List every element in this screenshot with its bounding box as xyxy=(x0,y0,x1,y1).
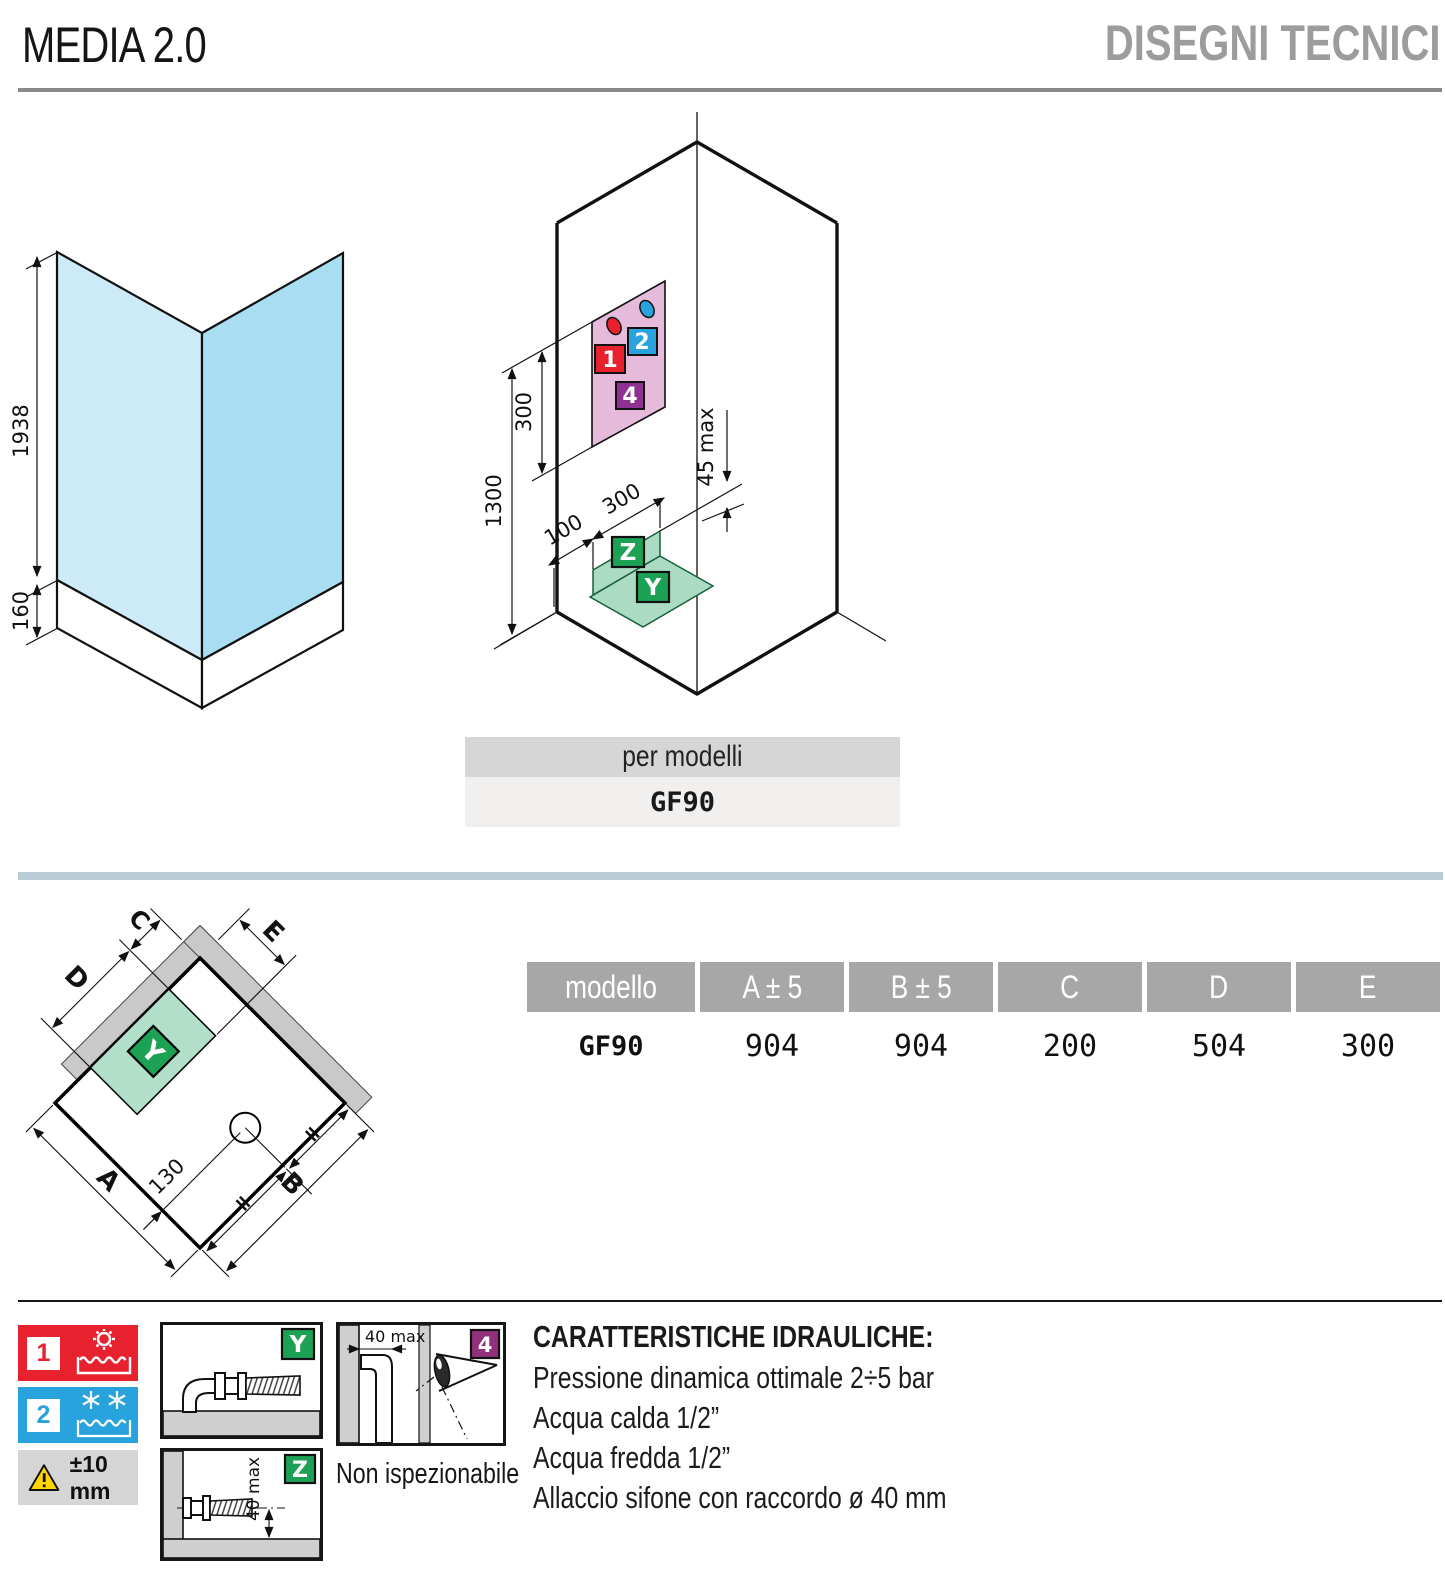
legend-cold-water: 2 xyxy=(18,1387,138,1443)
panel-m-drawing: 40 max 4 xyxy=(339,1325,503,1443)
header-rule xyxy=(18,88,1442,92)
page: MEDIA 2.0 DISEGNI TECNICI 1938 160 xyxy=(0,0,1445,1583)
dim-300-vert: 300 xyxy=(512,392,536,432)
panel-z-dim-40: 40 max xyxy=(244,1457,264,1521)
plan-dim-c: C xyxy=(123,904,155,936)
panel-z: 40 max Z xyxy=(160,1448,323,1561)
hydraulic-line-4: Allaccio sifone con raccordo ø 40 mm xyxy=(533,1478,1050,1518)
eye-icon xyxy=(432,1354,497,1391)
panel-m-marker-4: 4 xyxy=(471,1330,499,1358)
dim-1938: 1938 xyxy=(10,404,33,457)
plan-drawing: Y 130 A = = B C D E xyxy=(15,888,435,1308)
dim-100: 100 xyxy=(540,510,587,551)
panel-y-drawing: Y xyxy=(163,1325,320,1436)
per-modelli-value: GF90 xyxy=(465,777,900,827)
hydraulic-title: CARATTERISTICHE IDRAULICHE: xyxy=(533,1316,1050,1358)
legend-1-badge: 1 xyxy=(27,1337,60,1370)
col-e: E xyxy=(1296,962,1440,1012)
svg-text:Y: Y xyxy=(644,575,662,601)
per-modelli-label: per modelli xyxy=(465,737,900,777)
cell-a: 904 xyxy=(700,1028,844,1064)
panel-y-marker: Y xyxy=(282,1329,314,1359)
svg-text:4: 4 xyxy=(622,384,637,409)
panel-z-marker: Z xyxy=(285,1455,315,1483)
cell-e: 300 xyxy=(1296,1028,1440,1064)
spec-table-header: modello A ± 5 B ± 5 C D E xyxy=(527,962,1440,1012)
marker-y-square: Y xyxy=(637,572,669,602)
section-divider xyxy=(18,872,1443,880)
legend-hot-water: 1 xyxy=(18,1325,138,1381)
hydraulic-line-2: Acqua calda 1/2” xyxy=(533,1398,1050,1438)
cell-model: GF90 xyxy=(527,1028,695,1064)
cell-d: 504 xyxy=(1147,1028,1291,1064)
table-row: GF90 904 904 200 504 300 xyxy=(527,1028,1440,1064)
marker-z-square: Z xyxy=(612,537,644,567)
col-b: B ± 5 xyxy=(849,962,993,1012)
plan-tray xyxy=(55,958,345,1248)
per-modelli-box: per modelli GF90 xyxy=(465,737,900,827)
svg-text:Z: Z xyxy=(620,540,637,566)
svg-text:1: 1 xyxy=(602,348,617,373)
marker-4-square: 4 xyxy=(616,382,644,409)
snow-water-icon xyxy=(66,1390,136,1440)
snowflake-icon xyxy=(83,1391,125,1409)
panel-non-inspectable: 40 max 4 xyxy=(336,1322,506,1446)
col-c: C xyxy=(998,962,1142,1012)
page-subtitle: DISEGNI TECNICI xyxy=(1021,14,1440,72)
non-inspectable-label: Non ispezionabile xyxy=(336,1458,565,1491)
dim-1300: 1300 xyxy=(482,474,506,527)
page-title: MEDIA 2.0 xyxy=(22,16,252,74)
dim-160: 160 xyxy=(10,591,33,631)
installation-iso-drawing: 1 2 4 Z Y 300 1300 1 xyxy=(470,95,990,745)
cell-c: 200 xyxy=(998,1028,1142,1064)
plan-dim-e: E xyxy=(256,915,290,949)
bottom-section-rule xyxy=(18,1300,1442,1302)
panel-m-dim-40: 40 max xyxy=(365,1327,425,1346)
sun-water-icon xyxy=(66,1329,136,1377)
svg-text:Z: Z xyxy=(292,1458,308,1483)
dim-45-max: 45 max xyxy=(694,407,718,486)
glass-panels-drawing: 1938 160 xyxy=(10,235,390,735)
legend-tolerance: ±10 mm xyxy=(18,1450,138,1505)
col-modello: modello xyxy=(527,962,695,1012)
plan-dim-b: B xyxy=(274,1167,309,1202)
col-a: A ± 5 xyxy=(700,962,844,1012)
cell-b: 904 xyxy=(849,1028,993,1064)
warning-icon xyxy=(28,1460,62,1496)
svg-text:4: 4 xyxy=(478,1333,493,1357)
hydraulic-line-3: Acqua fredda 1/2” xyxy=(533,1438,1050,1478)
panel-y: Y xyxy=(160,1322,323,1439)
hydraulic-specs: CARATTERISTICHE IDRAULICHE: Pressione di… xyxy=(533,1316,1050,1518)
legend-2-badge: 2 xyxy=(27,1399,60,1432)
svg-text:Y: Y xyxy=(289,1332,307,1358)
marker-2-square: 2 xyxy=(628,328,657,355)
marker-1-square: 1 xyxy=(595,345,625,373)
col-d: D xyxy=(1147,962,1291,1012)
panel-z-drawing: 40 max Z xyxy=(163,1451,320,1558)
hydraulic-line-1: Pressione dinamica ottimale 2÷5 bar xyxy=(533,1358,1050,1398)
svg-text:2: 2 xyxy=(634,330,649,355)
tolerance-label: ±10 mm xyxy=(70,1451,138,1505)
spec-table: modello A ± 5 B ± 5 C D E GF90 904 904 2… xyxy=(527,962,1440,1064)
